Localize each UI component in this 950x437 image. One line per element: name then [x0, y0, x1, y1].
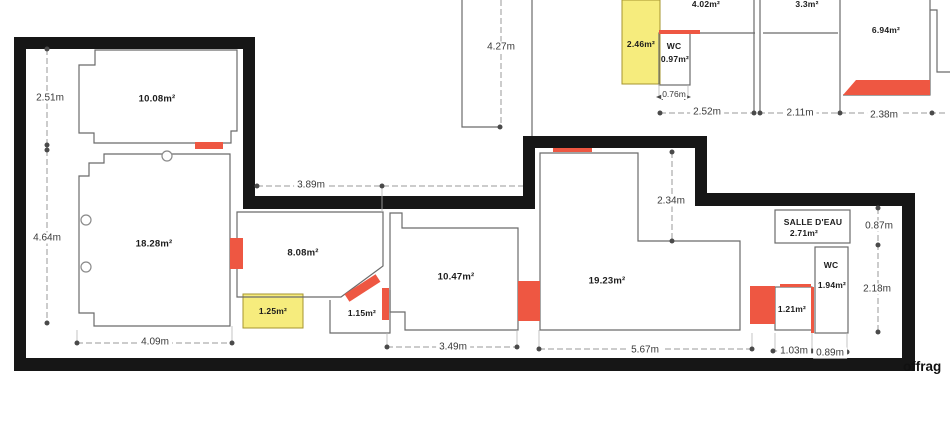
room-label-1-15: 1.15m² [348, 308, 376, 318]
dim-dot [45, 47, 50, 52]
dim-dot [45, 321, 50, 326]
wall-left-section-right [243, 37, 255, 203]
wall-right-horizontal [695, 193, 915, 206]
wall-mid-horizontal [243, 196, 535, 209]
wall-bottom [14, 358, 915, 371]
dim-label-0-87: 0.87m [862, 221, 896, 232]
dim-dot [515, 345, 520, 350]
opening-1-21-top-line [780, 284, 811, 287]
dim-dot [255, 184, 260, 189]
opening-19-23-right [750, 286, 775, 324]
room-label-2-46: 2.46m² [627, 39, 655, 49]
dim-dot [876, 206, 881, 211]
fixture-circle [81, 262, 91, 272]
dim-dot [876, 243, 881, 248]
dim-dot [876, 330, 881, 335]
room-label-1-21: 1.21m² [778, 304, 806, 314]
dim-label-2-38: 2.38m [867, 110, 901, 121]
room-outline-19-23 [540, 153, 740, 330]
dim-dot [230, 341, 235, 346]
dim-dot [385, 345, 390, 350]
dim-label-1-03: 1.03m [777, 346, 811, 357]
dim-label-2-18: 2.18m [860, 284, 894, 295]
room-label-19-23: 19.23m² [589, 276, 626, 287]
room-label-4-02: 4.02m² [692, 0, 720, 9]
room-label-wc-top: WC [667, 41, 682, 51]
dim-label-0-76: 0.76m [661, 89, 687, 99]
dim-dot [771, 349, 776, 354]
balcony-marker-6-94 [843, 80, 930, 95]
room-label-wc-top-area: 0.97m² [661, 54, 689, 64]
fixture-circle [162, 151, 172, 161]
room-label-wc-right: WC [824, 260, 839, 270]
opening-between-10-47-19-23 [518, 281, 540, 321]
opening-1-15-side [382, 288, 389, 320]
dim-dot [498, 125, 503, 130]
dim-dot [658, 111, 663, 116]
dim-label-2-52: 2.52m [690, 107, 724, 118]
room-label-wc-right-area: 1.94m² [818, 280, 846, 290]
room-label-8-08: 8.08m² [287, 248, 318, 259]
opening-between-10-08-18-28 [195, 142, 223, 149]
opening-1-21-wc-line [811, 287, 814, 333]
dim-dot [758, 111, 763, 116]
dim-dot [45, 143, 50, 148]
dim-label-3-89: 3.89m [294, 180, 328, 191]
dim-label-2-34: 2.34m [654, 196, 688, 207]
room-label-salle-deau-area: 2.71m² [790, 228, 818, 238]
room-label-10-08: 10.08m² [139, 94, 176, 105]
room-label-3-3: 3.3m² [795, 0, 818, 9]
dim-dot [45, 148, 50, 153]
room-label-1-25: 1.25m² [259, 306, 287, 316]
dim-label-3-49: 3.49m [436, 342, 470, 353]
dim-label-5-67: 5.67m [628, 345, 662, 356]
top-right-step [930, 10, 950, 72]
wall-top-left [14, 37, 255, 49]
dim-dot [838, 111, 843, 116]
room-label-18-28: 18.28m² [136, 239, 173, 250]
dim-label-2-51: 2.51m [33, 93, 67, 104]
wall-left [14, 37, 26, 370]
dim-dot [75, 341, 80, 346]
room-label-10-47: 10.47m² [438, 272, 475, 283]
dim-dot [670, 150, 675, 155]
dim-dot [930, 111, 935, 116]
opening-wc-top-line [659, 30, 700, 34]
room-label-salle-deau: SALLE D'EAU [784, 217, 843, 227]
fixture-circle [81, 215, 91, 225]
floorplan-canvas: 10.08m² 18.28m² 8.08m² 1.25m² 1.15m² 10.… [0, 0, 950, 437]
room-label-6-94: 6.94m² [872, 25, 900, 35]
dim-dot [380, 184, 385, 189]
opening-between-18-28-8-08 [230, 238, 243, 269]
dim-label-0-89: 0.89m [813, 348, 847, 359]
dim-dot [750, 347, 755, 352]
dim-dot [537, 347, 542, 352]
dim-label-2-11: 2.11m [783, 108, 816, 119]
note-offrag: offrag [903, 359, 941, 374]
dim-dot [752, 111, 757, 116]
wall-mid-top [523, 136, 707, 148]
dim-dot [670, 239, 675, 244]
upper-plan-line-left [462, 0, 500, 127]
dim-label-4-64: 4.64m [30, 233, 64, 244]
dim-label-4-27: 4.27m [484, 42, 518, 53]
dim-label-4-09: 4.09m [138, 337, 172, 348]
wall-right [902, 193, 915, 370]
